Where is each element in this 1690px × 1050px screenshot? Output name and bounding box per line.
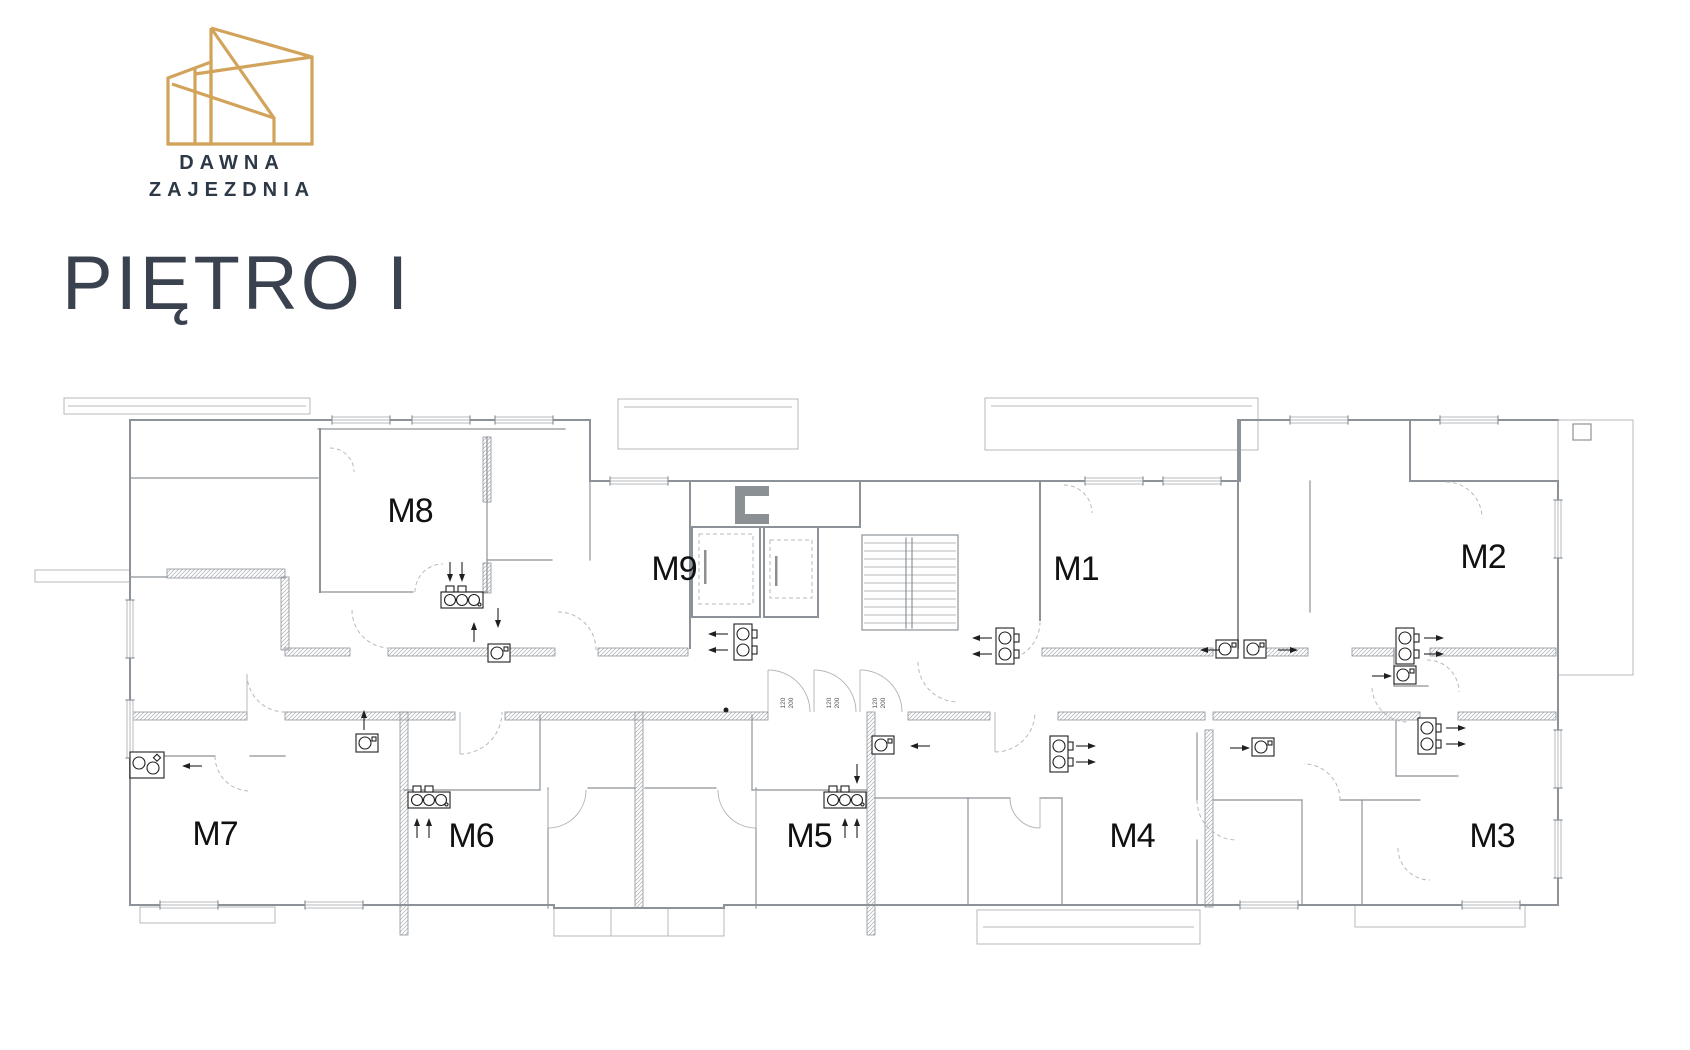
door-width-label: 120 (826, 697, 833, 708)
door-height-label: 200 (834, 697, 841, 708)
unit-label-m5: M5 (786, 817, 831, 855)
unit-label-m1: M1 (1053, 550, 1098, 588)
staircase (862, 535, 958, 630)
door-height-label: 200 (788, 697, 795, 708)
windows (126, 416, 1562, 909)
corridor-doors: 120 200 120 200 120 200 (768, 670, 902, 712)
unit-label-m6: M6 (448, 817, 493, 855)
floorplan-page: DAWNA ZAJEZDNIA PIĘTRO I (0, 0, 1690, 1050)
door-height-label: 200 (880, 697, 887, 708)
unit-label-m2: M2 (1460, 538, 1505, 576)
unit-label-m7: M7 (192, 815, 237, 853)
door-width-label: 120 (872, 697, 879, 708)
unit-label-m3: M3 (1469, 817, 1514, 855)
corridor-walls (130, 437, 1556, 935)
fixtures (130, 562, 1466, 838)
floorplan-drawing: 120 200 120 200 120 200 (0, 0, 1690, 1050)
unit-label-m8: M8 (387, 492, 432, 530)
balconies (35, 398, 1633, 944)
unit-label-m4: M4 (1109, 817, 1154, 855)
unit-label-m9: M9 (651, 550, 696, 588)
door-width-label: 120 (780, 697, 787, 708)
